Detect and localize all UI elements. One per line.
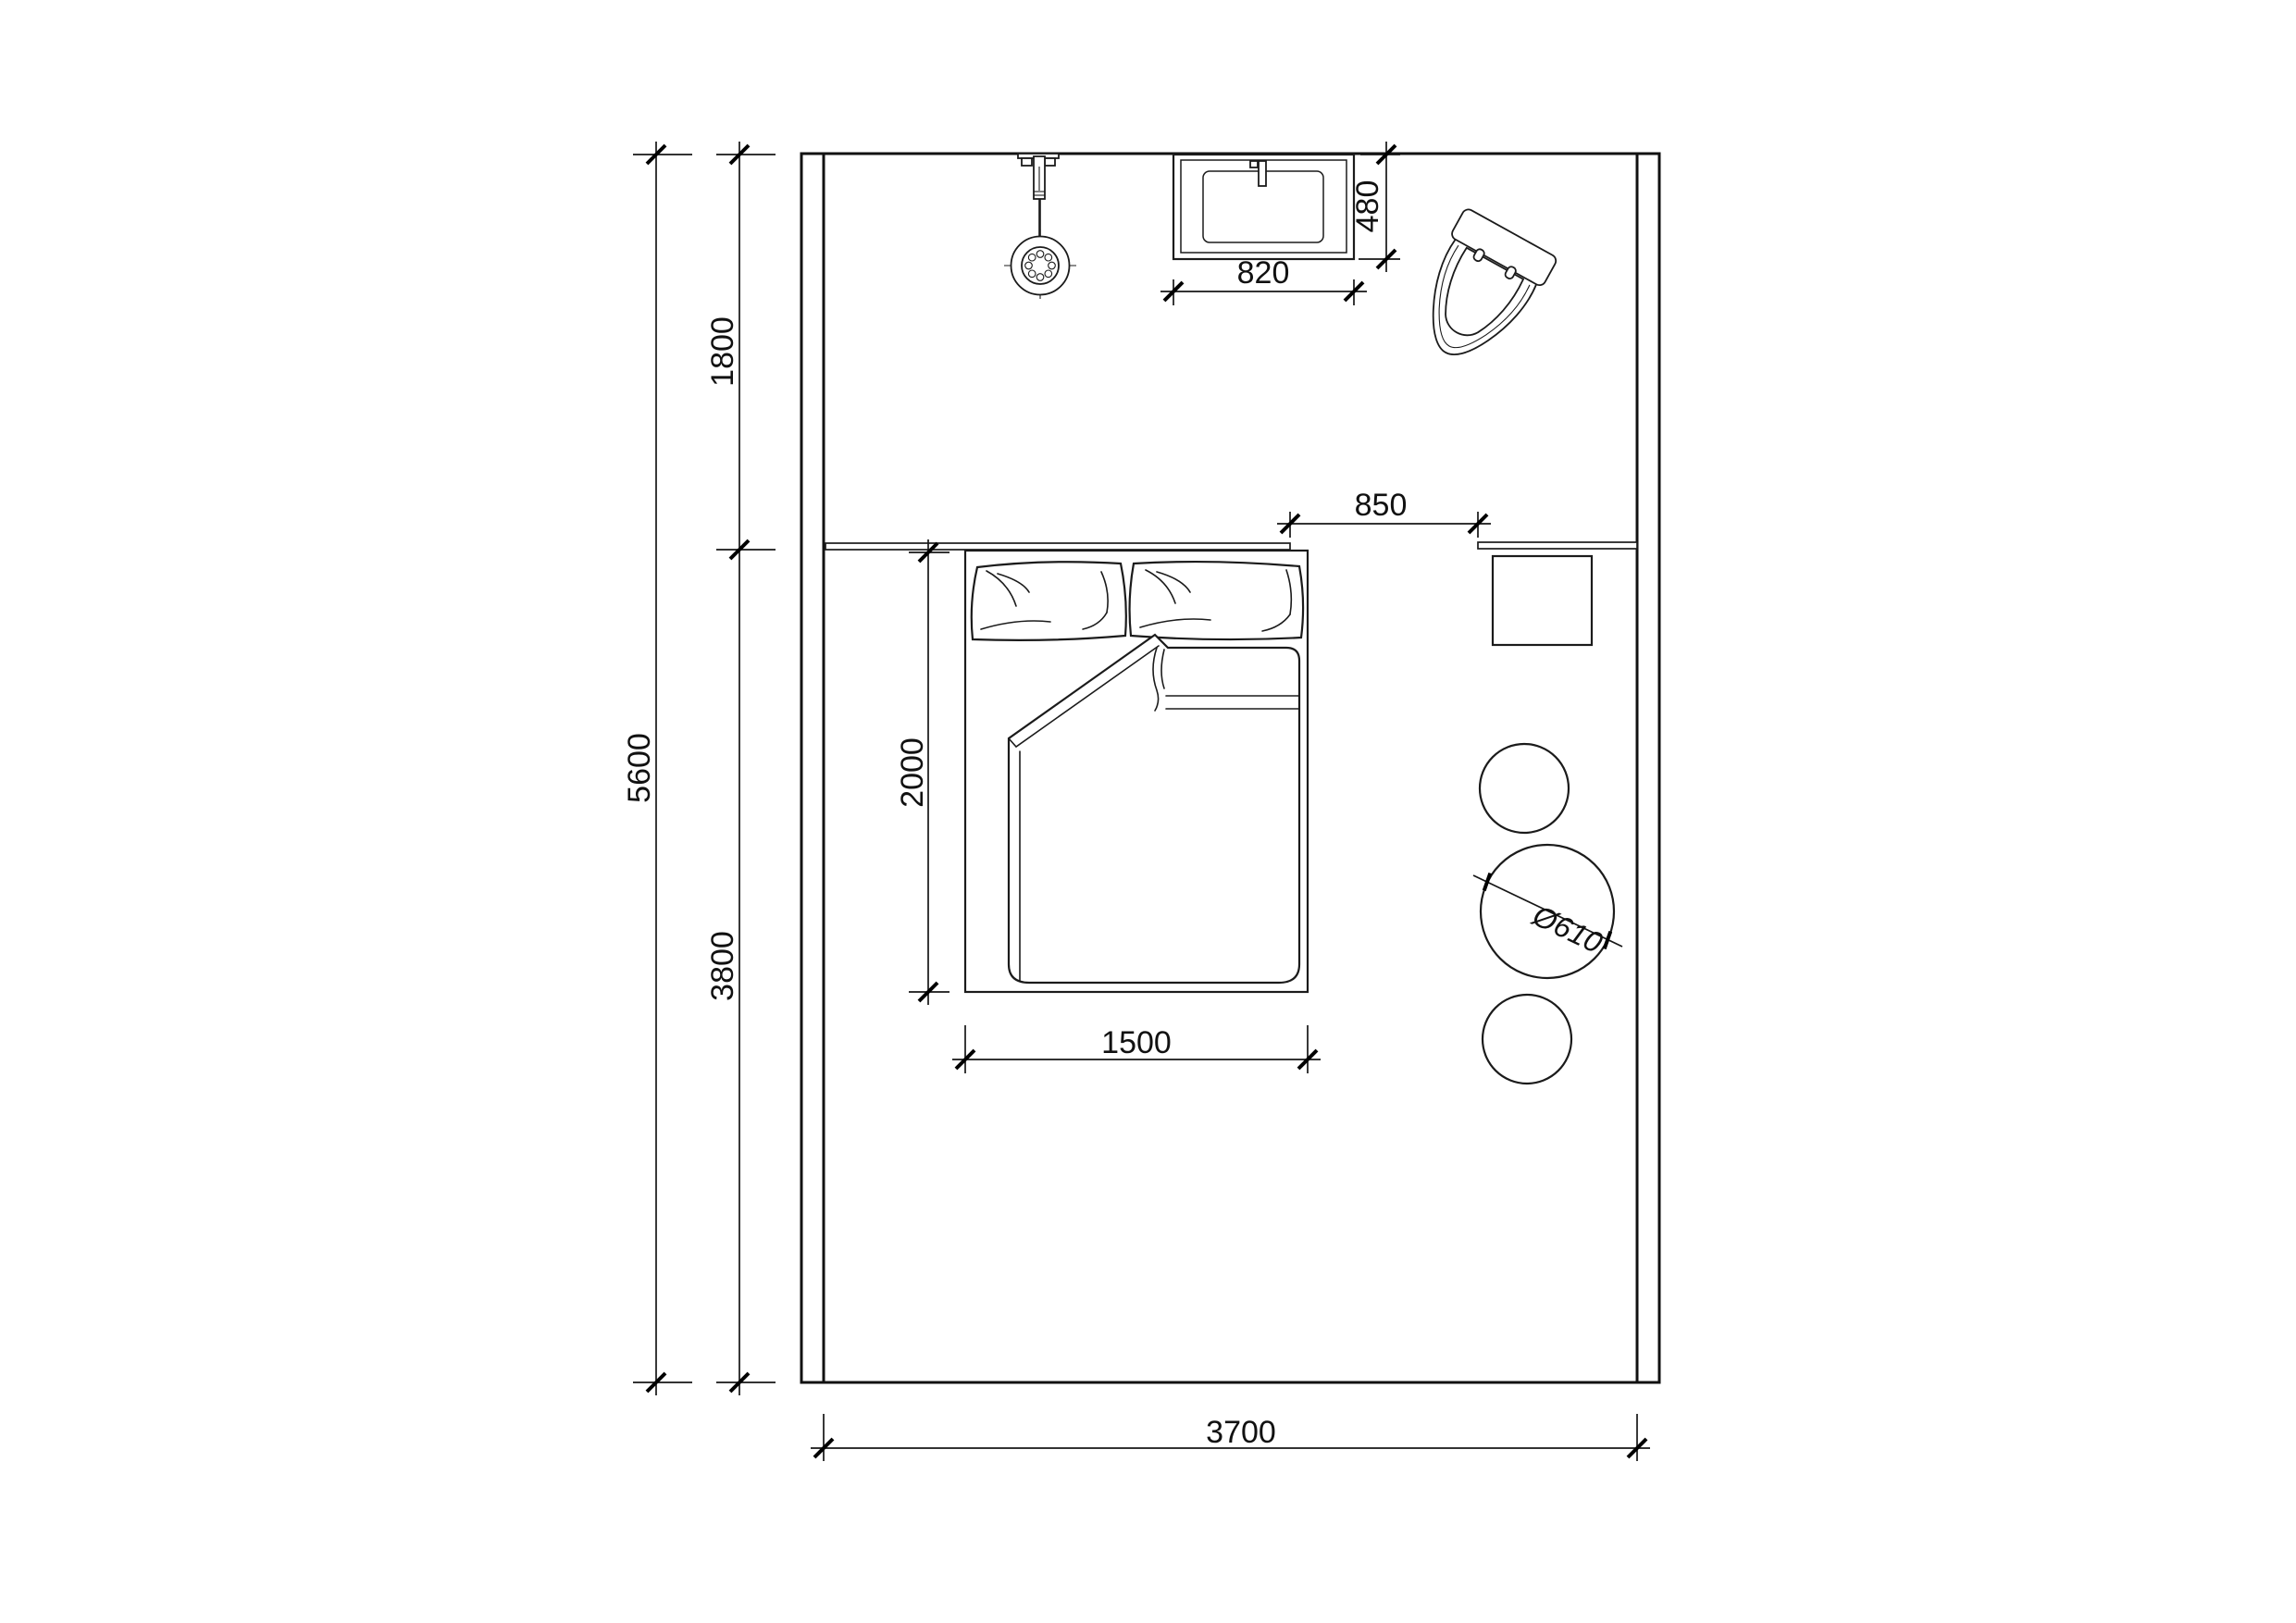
- washbasin: [1173, 155, 1354, 259]
- partition-left-segment: [825, 543, 1290, 550]
- dim-label-bed-width: 1500: [1101, 1025, 1172, 1060]
- stool-top: [1480, 744, 1569, 833]
- basin-faucet-handle: [1250, 161, 1258, 167]
- dim-bed-width: 1500: [952, 1025, 1321, 1073]
- dim-total-depth: 5600: [622, 142, 692, 1395]
- double-bed: [965, 551, 1308, 992]
- shower-bracket-foot-left: [1022, 158, 1032, 166]
- dim-basin-depth: 480: [1350, 142, 1400, 272]
- dim-label-sleep-zone: 3800: [705, 931, 740, 1001]
- basin-faucet: [1259, 161, 1266, 186]
- dim-label-total-depth: 5600: [622, 733, 657, 803]
- dim-bed-length: 2000: [895, 539, 949, 1005]
- dim-label-door-opening: 850: [1355, 488, 1408, 523]
- dim-label-bath-zone: 1800: [705, 316, 740, 387]
- partition-wall: [825, 542, 1637, 550]
- stool-bottom: [1483, 995, 1571, 1084]
- shower-head: [1004, 154, 1076, 299]
- dim-label-basin-width: 820: [1237, 255, 1290, 291]
- toilet: [1399, 207, 1558, 378]
- partition-right-segment: [1478, 542, 1637, 549]
- dim-label-basin-depth: 480: [1350, 180, 1385, 233]
- side-table: [1493, 556, 1592, 645]
- dim-label-bed-length: 2000: [895, 737, 930, 808]
- dim-label-room-width: 3700: [1206, 1415, 1276, 1450]
- dim-door-opening: 850: [1277, 488, 1491, 538]
- dim-basin-width: 820: [1160, 255, 1367, 305]
- shower-head-inner: [1022, 247, 1059, 284]
- shower-bracket-foot-right: [1045, 158, 1055, 166]
- pillow-left: [972, 562, 1126, 640]
- floor-plan-drawing: 5600 1800 3800 3700 2000 1500: [0, 0, 2296, 1623]
- dim-room-width: 3700: [811, 1414, 1650, 1461]
- pillow-right: [1130, 562, 1304, 639]
- dim-zone-depths: 1800 3800: [705, 142, 776, 1395]
